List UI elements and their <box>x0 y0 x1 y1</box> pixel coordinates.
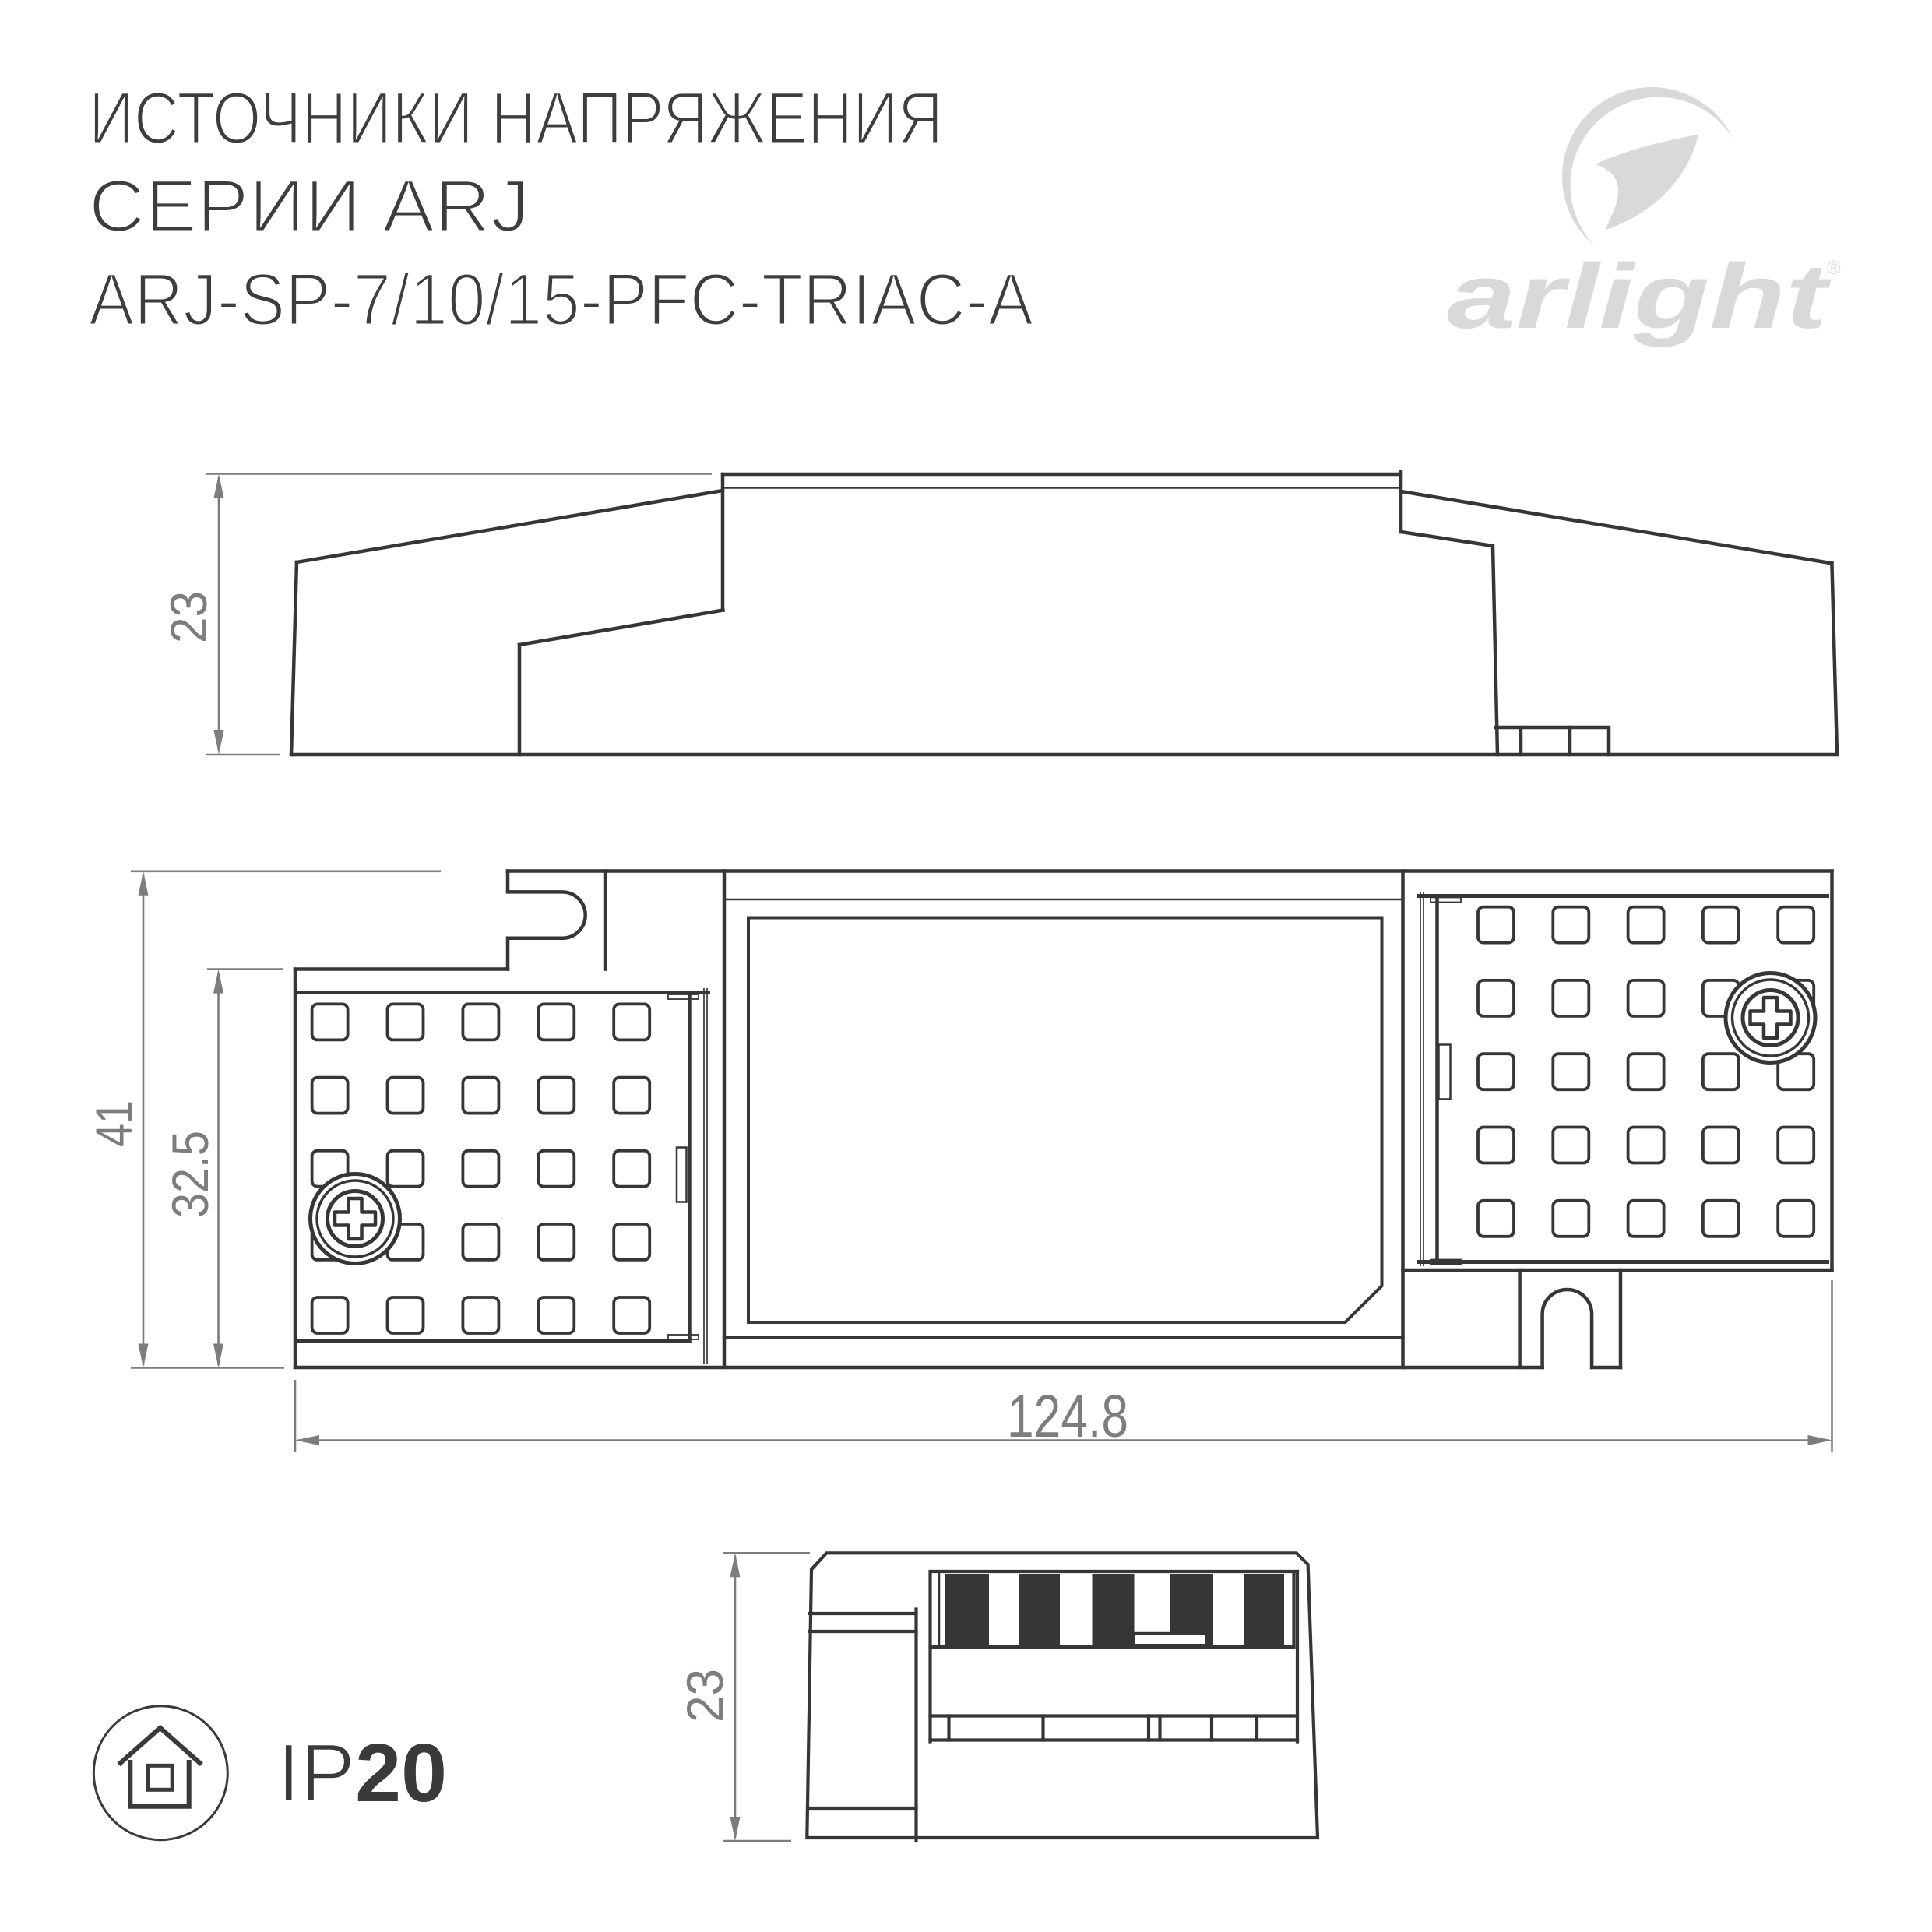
svg-text:32.5: 32.5 <box>161 1131 219 1218</box>
svg-text:ИСТОЧНИКИ НАПРЯЖЕНИЯ: ИСТОЧНИКИ НАПРЯЖЕНИЯ <box>89 77 943 160</box>
svg-text:СЕРИИ ARJ: СЕРИИ ARJ <box>89 165 530 248</box>
svg-text:124.8: 124.8 <box>1007 1383 1128 1450</box>
svg-text:arlight: arlight <box>1447 245 1832 348</box>
svg-text:®: ® <box>1827 258 1841 279</box>
svg-text:23: 23 <box>676 1669 734 1723</box>
svg-text:ARJ-SP-7/10/15-PFC-TRIAC-A: ARJ-SP-7/10/15-PFC-TRIAC-A <box>89 259 1034 341</box>
svg-text:41: 41 <box>85 1100 143 1147</box>
svg-text:IP20: IP20 <box>277 1727 447 1819</box>
svg-text:23: 23 <box>160 591 217 643</box>
